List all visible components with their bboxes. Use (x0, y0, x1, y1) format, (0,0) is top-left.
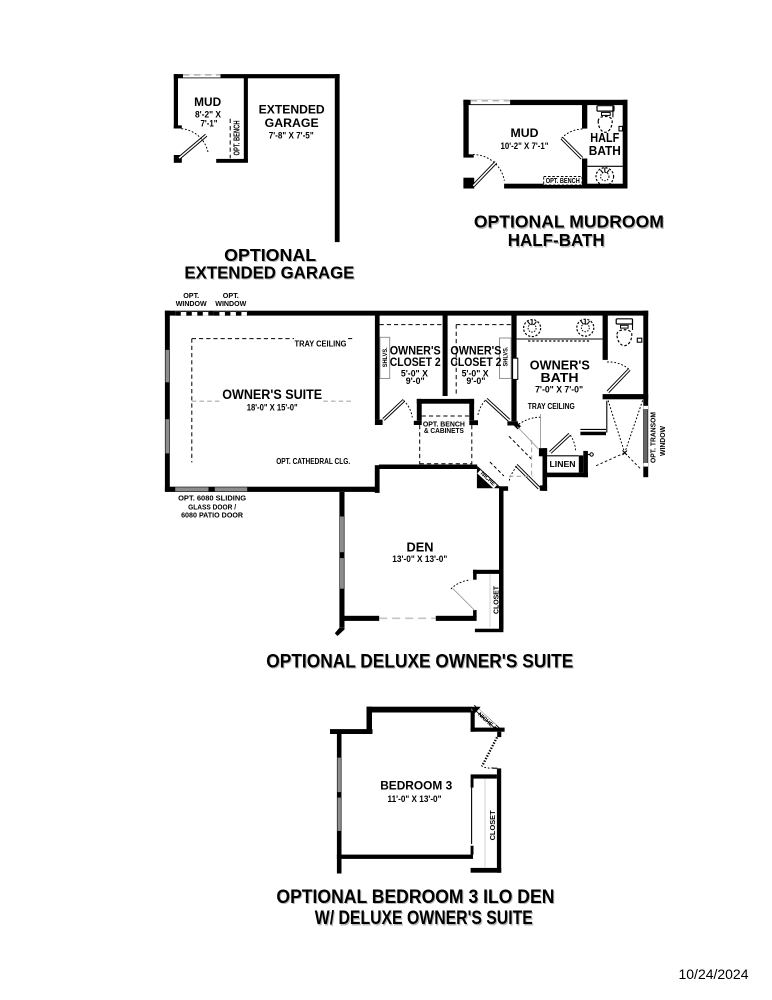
svg-text:9'-0": 9'-0" (406, 376, 425, 386)
svg-text:9'-0": 9'-0" (466, 376, 485, 386)
svg-text:7'-1": 7'-1" (201, 119, 218, 129)
svg-text:WINDOW: WINDOW (660, 426, 667, 456)
svg-text:OPT. BENCH: OPT. BENCH (233, 120, 242, 155)
svg-text:BATH: BATH (541, 370, 579, 385)
svg-text:GARAGE: GARAGE (265, 116, 319, 130)
svg-text:EXTENDED: EXTENDED (259, 103, 325, 117)
svg-text:WINDOW: WINDOW (176, 299, 208, 308)
svg-text:W/ DELUXE OWNER'S SUITE: W/ DELUXE OWNER'S SUITE (315, 907, 533, 929)
svg-text:OWNER'S SUITE: OWNER'S SUITE (222, 387, 322, 402)
svg-text:11'-0" X 13'-0": 11'-0" X 13'-0" (388, 794, 442, 804)
svg-text:HALF-BATH: HALF-BATH (508, 230, 605, 250)
svg-text:TRAY CEILING: TRAY CEILING (528, 402, 575, 411)
svg-text:BEDROOM 3: BEDROOM 3 (380, 779, 452, 793)
svg-text:OPTIONAL MUDROOM: OPTIONAL MUDROOM (474, 212, 664, 232)
svg-text:TRAY CEILING: TRAY CEILING (295, 339, 347, 348)
svg-text:SHLVS.: SHLVS. (382, 347, 389, 367)
svg-text:CLOSET: CLOSET (488, 810, 497, 841)
svg-text:MUD: MUD (194, 97, 221, 109)
svg-text:BATH: BATH (589, 143, 621, 158)
svg-text:EXTENDED GARAGE: EXTENDED GARAGE (184, 263, 354, 283)
svg-text:OPT. CATHEDRAL CLG.: OPT. CATHEDRAL CLG. (276, 457, 350, 466)
svg-text:CLOSET 2: CLOSET 2 (390, 355, 441, 369)
svg-text:SHLVS.: SHLVS. (503, 346, 510, 366)
svg-text:OPT. 6080 SLIDING: OPT. 6080 SLIDING (178, 494, 246, 503)
svg-text:CLOSET 2: CLOSET 2 (450, 355, 501, 369)
svg-text:10'-2" X 7'-1": 10'-2" X 7'-1" (501, 141, 549, 151)
svg-text:7'-0" X 7'-0": 7'-0" X 7'-0" (535, 385, 583, 395)
svg-text:& CABINETS: & CABINETS (424, 426, 464, 435)
svg-text:CLOSET: CLOSET (494, 585, 501, 614)
svg-text:OPTIONAL BEDROOM 3 ILO DEN: OPTIONAL BEDROOM 3 ILO DEN (276, 886, 554, 908)
svg-text:6080 PATIO DOOR: 6080 PATIO DOOR (181, 511, 243, 520)
svg-text:13'-0" X 13'-0": 13'-0" X 13'-0" (392, 554, 447, 564)
svg-text:OPT. TRANSOM: OPT. TRANSOM (650, 412, 657, 463)
svg-text:WINDOW: WINDOW (215, 299, 247, 308)
svg-text:DEN: DEN (407, 540, 434, 555)
svg-text:OPT. BENCH: OPT. BENCH (546, 176, 580, 185)
svg-text:7'-8" X 7'-5": 7'-8" X 7'-5" (269, 131, 314, 141)
svg-text:MUD: MUD (511, 128, 539, 140)
svg-text:LINEN: LINEN (550, 460, 576, 469)
svg-text:18'-0" X 15'-0": 18'-0" X 15'-0" (247, 403, 298, 413)
svg-text:10/24/2024: 10/24/2024 (679, 967, 749, 982)
svg-text:OPTIONAL DELUXE OWNER'S SUITE: OPTIONAL DELUXE OWNER'S SUITE (266, 650, 573, 672)
